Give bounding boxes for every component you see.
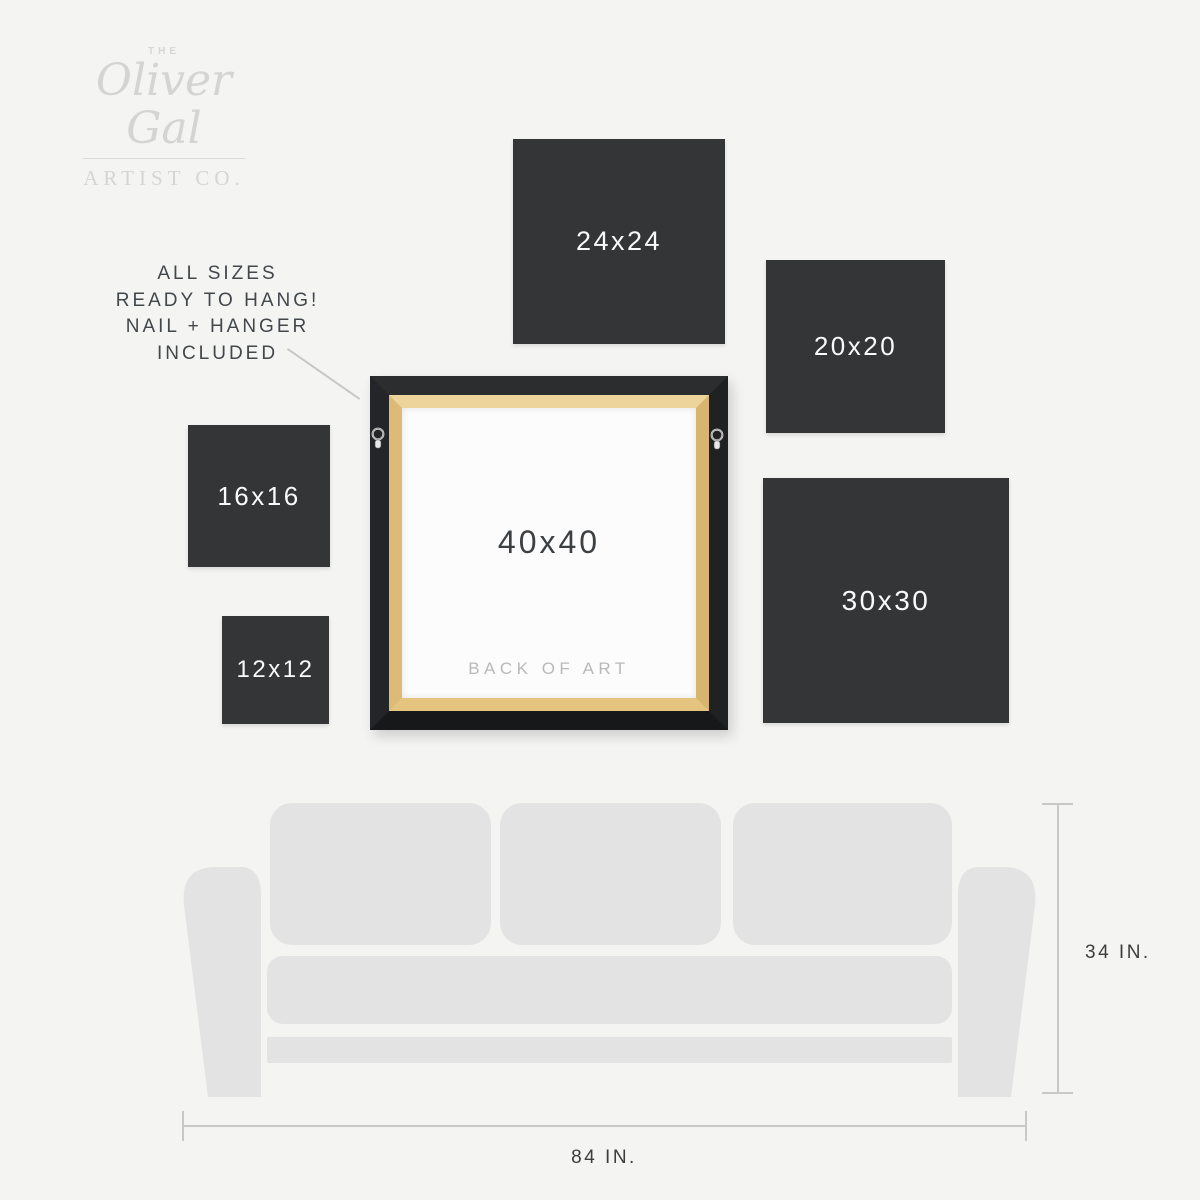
brand-logo: THE Oliver Gal ARTIST CO. — [58, 46, 270, 191]
couch-height-label: 34 IN. — [1085, 942, 1151, 964]
size-swatch-label: 12x12 — [237, 656, 315, 684]
logo-divider — [83, 158, 245, 159]
size-swatch-12x12: 12x12 — [222, 616, 329, 724]
dimension-cap — [182, 1111, 184, 1141]
frame-canvas-back: 40x40 BACK OF ART — [402, 408, 696, 698]
couch-armrest-right — [958, 867, 1035, 1097]
couch-back-cushion — [500, 803, 721, 945]
frame-outer-black: 40x40 BACK OF ART — [370, 376, 728, 730]
dimension-line-width — [183, 1125, 1026, 1127]
back-of-art-label: BACK OF ART — [402, 659, 696, 679]
size-swatch-label: 20x20 — [814, 331, 897, 362]
size-swatch-label: 24x24 — [576, 226, 662, 257]
note-line-1: ALL SIZES — [100, 261, 335, 288]
ready-to-hang-note: ALL SIZES READY TO HANG! NAIL + HANGER I… — [100, 261, 335, 367]
dimension-cap — [1042, 803, 1073, 805]
size-swatch-20x20: 20x20 — [766, 260, 945, 433]
size-swatch-24x24: 24x24 — [513, 139, 725, 344]
size-swatch-16x16: 16x16 — [188, 425, 330, 567]
note-line-2: READY TO HANG! — [100, 288, 335, 315]
frame-size-label: 40x40 — [498, 524, 600, 561]
logo-subtitle: ARTIST CO. — [58, 166, 270, 191]
dimension-line-height — [1057, 804, 1059, 1093]
size-swatch-label: 16x16 — [217, 481, 300, 512]
dimension-cap — [1025, 1111, 1027, 1141]
couch-width-label: 84 IN. — [504, 1147, 704, 1169]
size-swatch-label: 30x30 — [842, 585, 931, 617]
note-line-4: INCLUDED — [100, 341, 335, 368]
logo-brand-name: Oliver Gal — [58, 57, 270, 153]
dimension-cap — [1042, 1092, 1073, 1094]
note-line-3: NAIL + HANGER — [100, 314, 335, 341]
couch-back-cushion — [733, 803, 952, 945]
frame-wood-stretcher: 40x40 BACK OF ART — [389, 395, 709, 711]
couch-base — [267, 1037, 952, 1063]
couch-seat-cushion — [267, 956, 952, 1024]
couch-silhouette — [170, 795, 1050, 1110]
canvas-back-mockup-40x40: 40x40 BACK OF ART — [370, 376, 728, 730]
size-guide-page: THE Oliver Gal ARTIST CO. ALL SIZES READ… — [0, 0, 1200, 1200]
size-swatch-30x30: 30x30 — [763, 478, 1009, 723]
d-ring-hanger-icon — [371, 425, 385, 451]
d-ring-hanger-icon — [710, 426, 724, 452]
couch-armrest-left — [184, 867, 261, 1097]
couch-back-cushion — [270, 803, 491, 945]
